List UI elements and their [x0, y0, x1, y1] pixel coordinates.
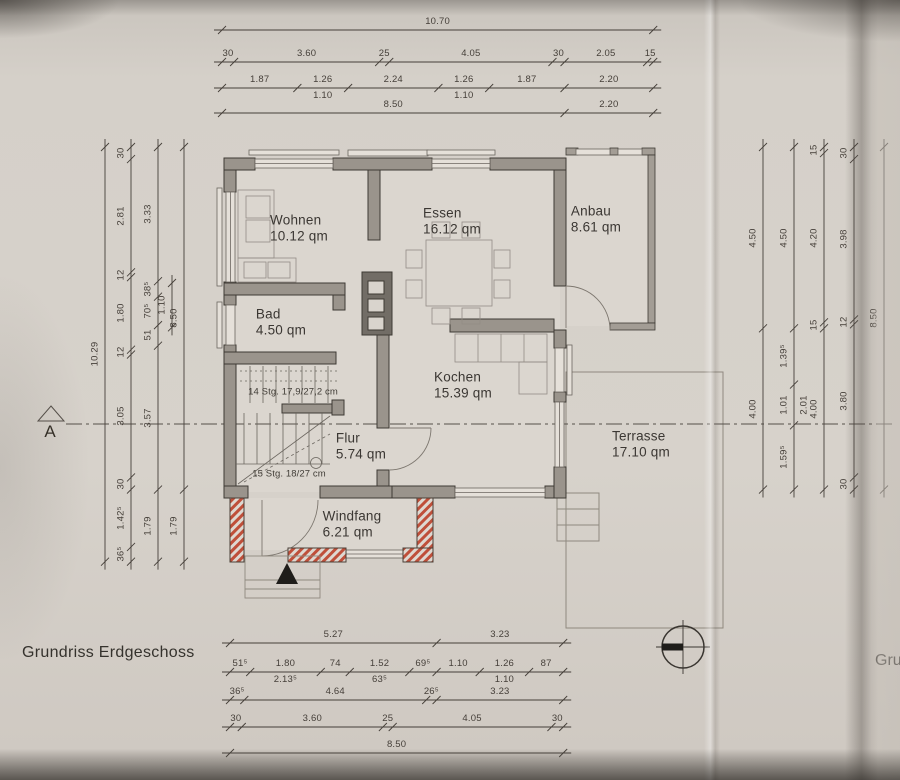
room-name: Essen	[423, 206, 481, 222]
room-label-flur: Flur 5.74 qm	[336, 431, 386, 464]
room-area: 4.50 qm	[256, 323, 306, 339]
room-area: 5.74 qm	[336, 447, 386, 463]
room-area: 17.10 qm	[612, 445, 670, 461]
floor-plan-scan: 10.70303.60254.05302.05151.871.261.102.2…	[0, 0, 900, 780]
room-label-bad: Bad 4.50 qm	[256, 307, 306, 340]
room-area: 15.39 qm	[434, 386, 492, 402]
adjacent-page-text: Gru	[875, 652, 900, 670]
room-label-anbau: Anbau 8.61 qm	[571, 204, 621, 237]
room-label-wohnen: Wohnen 10.12 qm	[270, 213, 328, 246]
stairs-lower-label: 15 Stg. 18/27 cm	[252, 469, 325, 480]
room-area: 16.12 qm	[423, 222, 481, 238]
section-marker-label: A	[44, 422, 55, 442]
room-name: Terrasse	[612, 429, 670, 445]
room-area: 6.21 qm	[323, 525, 382, 541]
room-label-kochen: Kochen 15.39 qm	[434, 370, 492, 403]
room-label-windfang: Windfang 6.21 qm	[323, 509, 382, 542]
room-name: Anbau	[571, 204, 621, 220]
stairs-upper-label: 14 Stg. 17,9/27,2 cm	[248, 387, 338, 398]
room-area: 8.61 qm	[571, 220, 621, 236]
room-name: Bad	[256, 307, 306, 323]
room-name: Flur	[336, 431, 386, 447]
drawing-title: Grundriss Erdgeschoss	[22, 644, 195, 662]
room-area: 10.12 qm	[270, 229, 328, 245]
room-label-terrasse: Terrasse 17.10 qm	[612, 429, 670, 462]
room-name: Kochen	[434, 370, 492, 386]
room-name: Wohnen	[270, 213, 328, 229]
room-name: Windfang	[323, 509, 382, 525]
room-label-essen: Essen 16.12 qm	[423, 206, 481, 239]
